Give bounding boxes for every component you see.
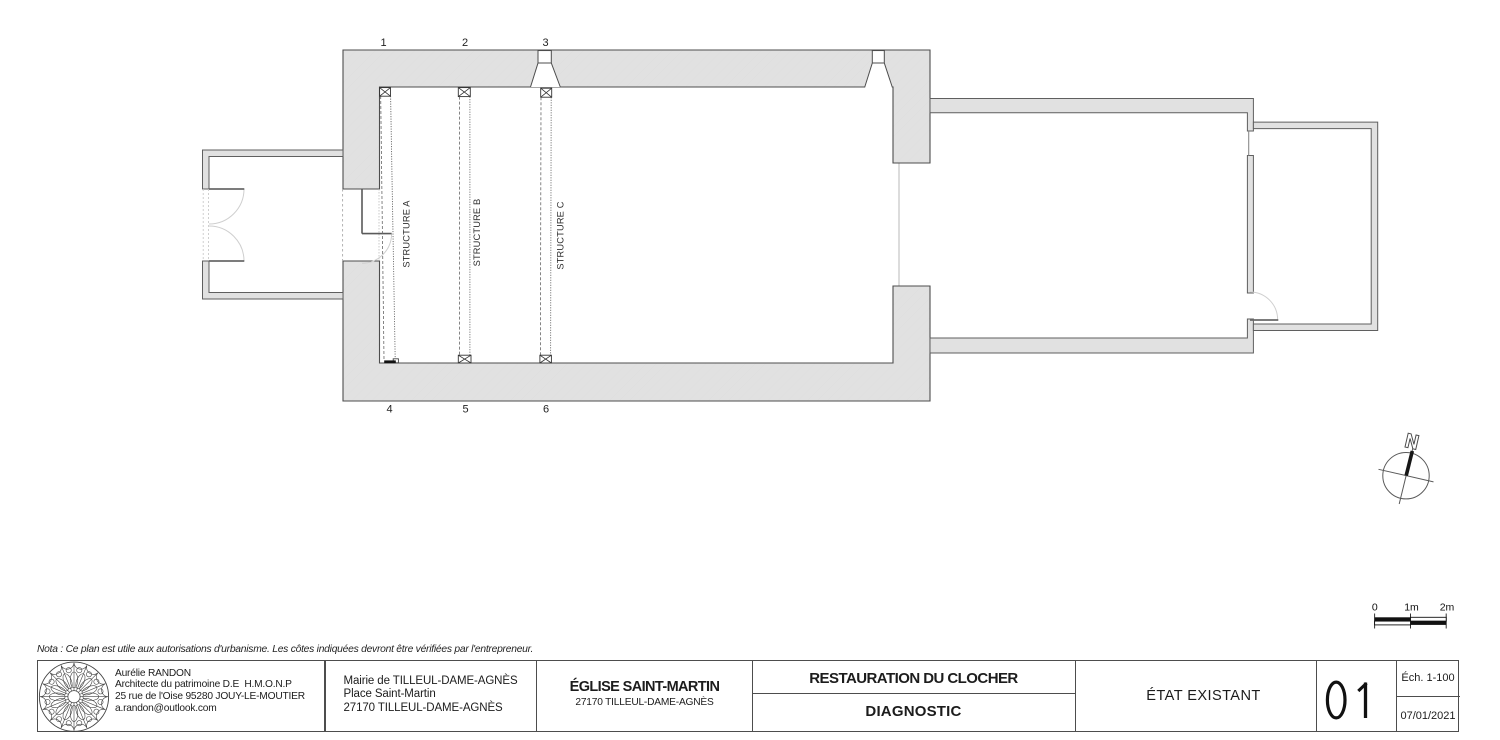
svg-text:1m: 1m [1404,602,1419,614]
svg-text:1: 1 [380,37,386,49]
svg-text:0: 0 [1372,602,1378,614]
svg-text:2: 2 [462,37,468,49]
svg-text:4: 4 [386,404,392,416]
svg-text:6: 6 [543,404,549,416]
svg-text:5: 5 [462,404,468,416]
svg-text:STRUCTURE A: STRUCTURE A [401,200,411,268]
svg-text:3: 3 [542,37,548,49]
svg-text:STRUCTURE B: STRUCTURE B [472,199,482,267]
svg-text:2m: 2m [1440,602,1455,614]
svg-text:STRUCTURE C: STRUCTURE C [555,201,565,269]
